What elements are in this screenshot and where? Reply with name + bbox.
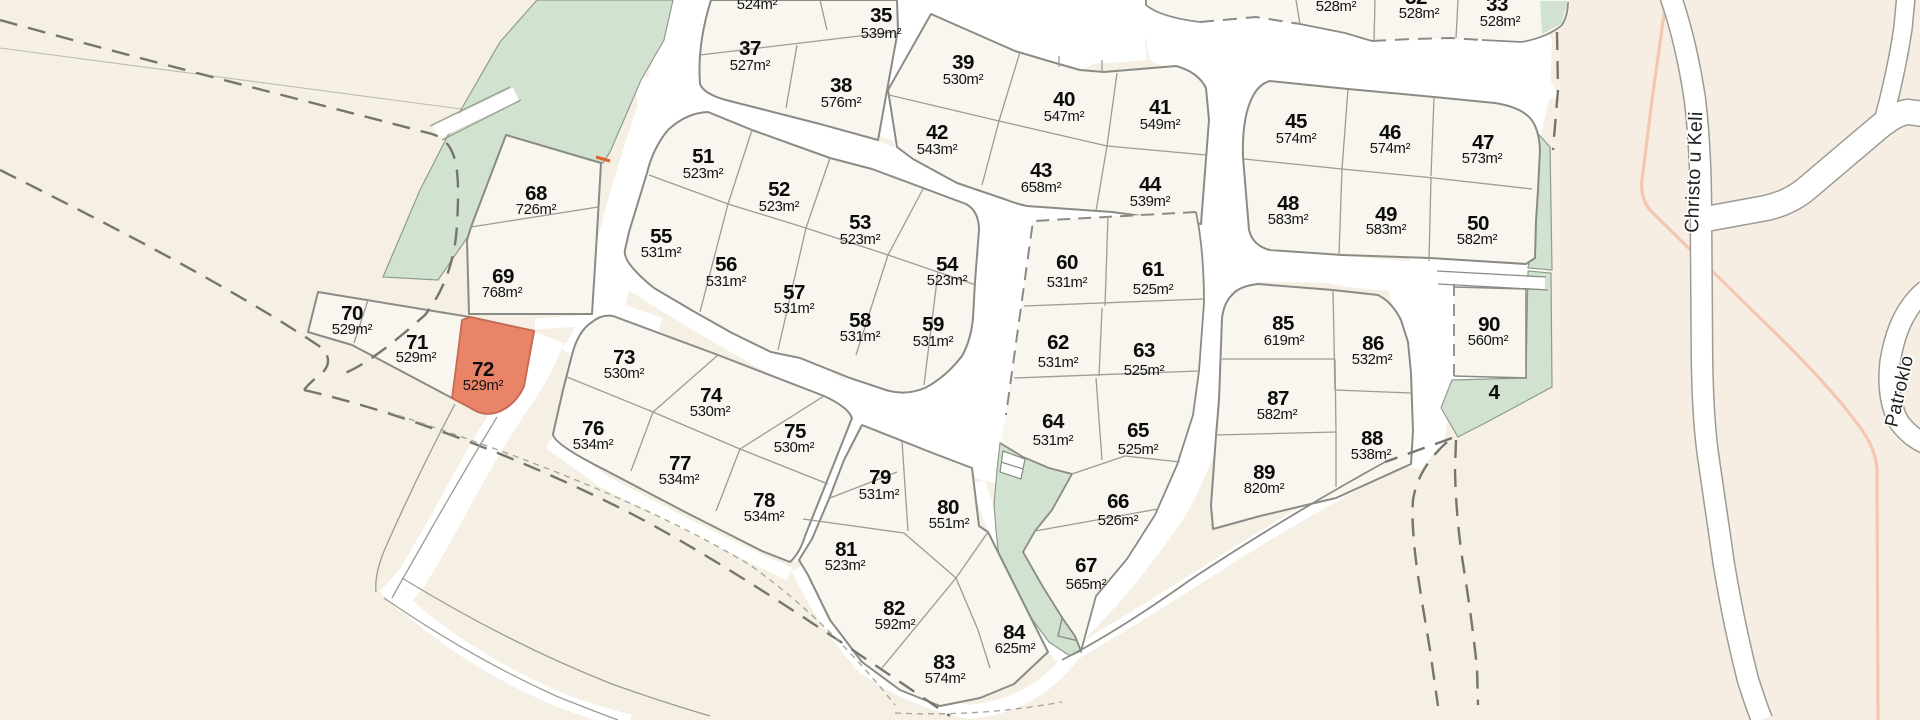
svg-text:4: 4 xyxy=(1489,381,1501,404)
svg-text:525m²: 525m² xyxy=(1133,282,1174,298)
svg-text:582m²: 582m² xyxy=(1457,232,1498,248)
svg-text:529m²: 529m² xyxy=(396,350,437,366)
svg-text:42: 42 xyxy=(926,121,948,144)
svg-text:530m²: 530m² xyxy=(690,404,731,420)
svg-text:531m²: 531m² xyxy=(859,487,900,503)
svg-text:592m²: 592m² xyxy=(875,617,916,633)
svg-text:625m²: 625m² xyxy=(995,641,1036,657)
svg-text:565m²: 565m² xyxy=(1066,577,1107,593)
svg-text:547m²: 547m² xyxy=(1044,109,1085,125)
svg-text:79: 79 xyxy=(869,466,891,489)
svg-text:43: 43 xyxy=(1030,159,1052,182)
svg-text:531m²: 531m² xyxy=(1033,433,1074,449)
svg-text:531m²: 531m² xyxy=(774,301,815,317)
svg-text:529m²: 529m² xyxy=(463,378,504,394)
svg-text:523m²: 523m² xyxy=(927,273,968,289)
svg-text:41: 41 xyxy=(1149,96,1171,119)
svg-text:534m²: 534m² xyxy=(659,472,700,488)
svg-text:64: 64 xyxy=(1042,410,1065,433)
svg-text:526m²: 526m² xyxy=(1098,513,1139,529)
svg-text:820m²: 820m² xyxy=(1244,481,1285,497)
svg-text:531m²: 531m² xyxy=(1038,355,1079,371)
svg-text:523m²: 523m² xyxy=(840,232,881,248)
svg-text:35: 35 xyxy=(870,4,892,27)
svg-text:527m²: 527m² xyxy=(730,58,771,74)
svg-text:539m²: 539m² xyxy=(1130,194,1171,210)
svg-text:531m²: 531m² xyxy=(913,334,954,350)
svg-text:56: 56 xyxy=(715,253,737,276)
svg-text:52: 52 xyxy=(768,178,790,201)
svg-text:543m²: 543m² xyxy=(917,142,958,158)
svg-text:60: 60 xyxy=(1056,251,1078,274)
svg-text:66: 66 xyxy=(1107,490,1129,513)
svg-text:583m²: 583m² xyxy=(1268,212,1309,228)
svg-text:538m²: 538m² xyxy=(1351,447,1392,463)
svg-text:37: 37 xyxy=(739,37,761,60)
svg-text:551m²: 551m² xyxy=(929,516,970,532)
svg-text:59: 59 xyxy=(922,313,944,336)
svg-text:528m²: 528m² xyxy=(1399,6,1440,22)
svg-text:528m²: 528m² xyxy=(1480,14,1521,30)
svg-text:525m²: 525m² xyxy=(1118,442,1159,458)
svg-text:532m²: 532m² xyxy=(1352,352,1393,368)
svg-text:726m²: 726m² xyxy=(516,202,557,218)
svg-text:539m²: 539m² xyxy=(861,26,902,42)
svg-text:44: 44 xyxy=(1139,173,1162,196)
svg-text:51: 51 xyxy=(692,145,714,168)
svg-text:574m²: 574m² xyxy=(1370,141,1411,157)
svg-text:524m²: 524m² xyxy=(737,0,778,13)
svg-text:560m²: 560m² xyxy=(1468,333,1509,349)
svg-text:534m²: 534m² xyxy=(573,437,614,453)
svg-text:573m²: 573m² xyxy=(1462,151,1503,167)
svg-text:523m²: 523m² xyxy=(825,558,866,574)
svg-text:531m²: 531m² xyxy=(1047,275,1088,291)
svg-text:583m²: 583m² xyxy=(1366,222,1407,238)
svg-text:53: 53 xyxy=(849,211,871,234)
svg-text:65: 65 xyxy=(1127,419,1149,442)
svg-text:67: 67 xyxy=(1075,554,1097,577)
svg-text:523m²: 523m² xyxy=(683,166,724,182)
svg-text:523m²: 523m² xyxy=(759,199,800,215)
svg-text:Christo u Keli: Christo u Keli xyxy=(1681,111,1707,233)
svg-text:582m²: 582m² xyxy=(1257,407,1298,423)
svg-text:529m²: 529m² xyxy=(332,322,373,338)
svg-text:39: 39 xyxy=(952,51,974,74)
svg-text:525m²: 525m² xyxy=(1124,363,1165,379)
svg-text:768m²: 768m² xyxy=(482,285,523,301)
svg-text:61: 61 xyxy=(1142,258,1164,281)
svg-text:576m²: 576m² xyxy=(821,95,862,111)
svg-text:531m²: 531m² xyxy=(706,274,747,290)
svg-text:40: 40 xyxy=(1053,88,1075,111)
svg-text:85: 85 xyxy=(1272,312,1294,335)
svg-text:528m²: 528m² xyxy=(1316,0,1357,15)
svg-text:530m²: 530m² xyxy=(604,366,645,382)
svg-text:619m²: 619m² xyxy=(1264,333,1305,349)
svg-text:549m²: 549m² xyxy=(1140,117,1181,133)
svg-text:658m²: 658m² xyxy=(1021,180,1062,196)
svg-text:531m²: 531m² xyxy=(641,245,682,261)
svg-text:531m²: 531m² xyxy=(840,329,881,345)
svg-text:534m²: 534m² xyxy=(744,509,785,525)
svg-text:574m²: 574m² xyxy=(1276,131,1317,147)
svg-text:38: 38 xyxy=(830,74,852,97)
svg-text:62: 62 xyxy=(1047,331,1069,354)
svg-text:530m²: 530m² xyxy=(943,72,984,88)
svg-text:530m²: 530m² xyxy=(774,440,815,456)
svg-text:63: 63 xyxy=(1133,339,1155,362)
svg-text:574m²: 574m² xyxy=(925,671,966,687)
svg-text:45: 45 xyxy=(1285,110,1307,133)
